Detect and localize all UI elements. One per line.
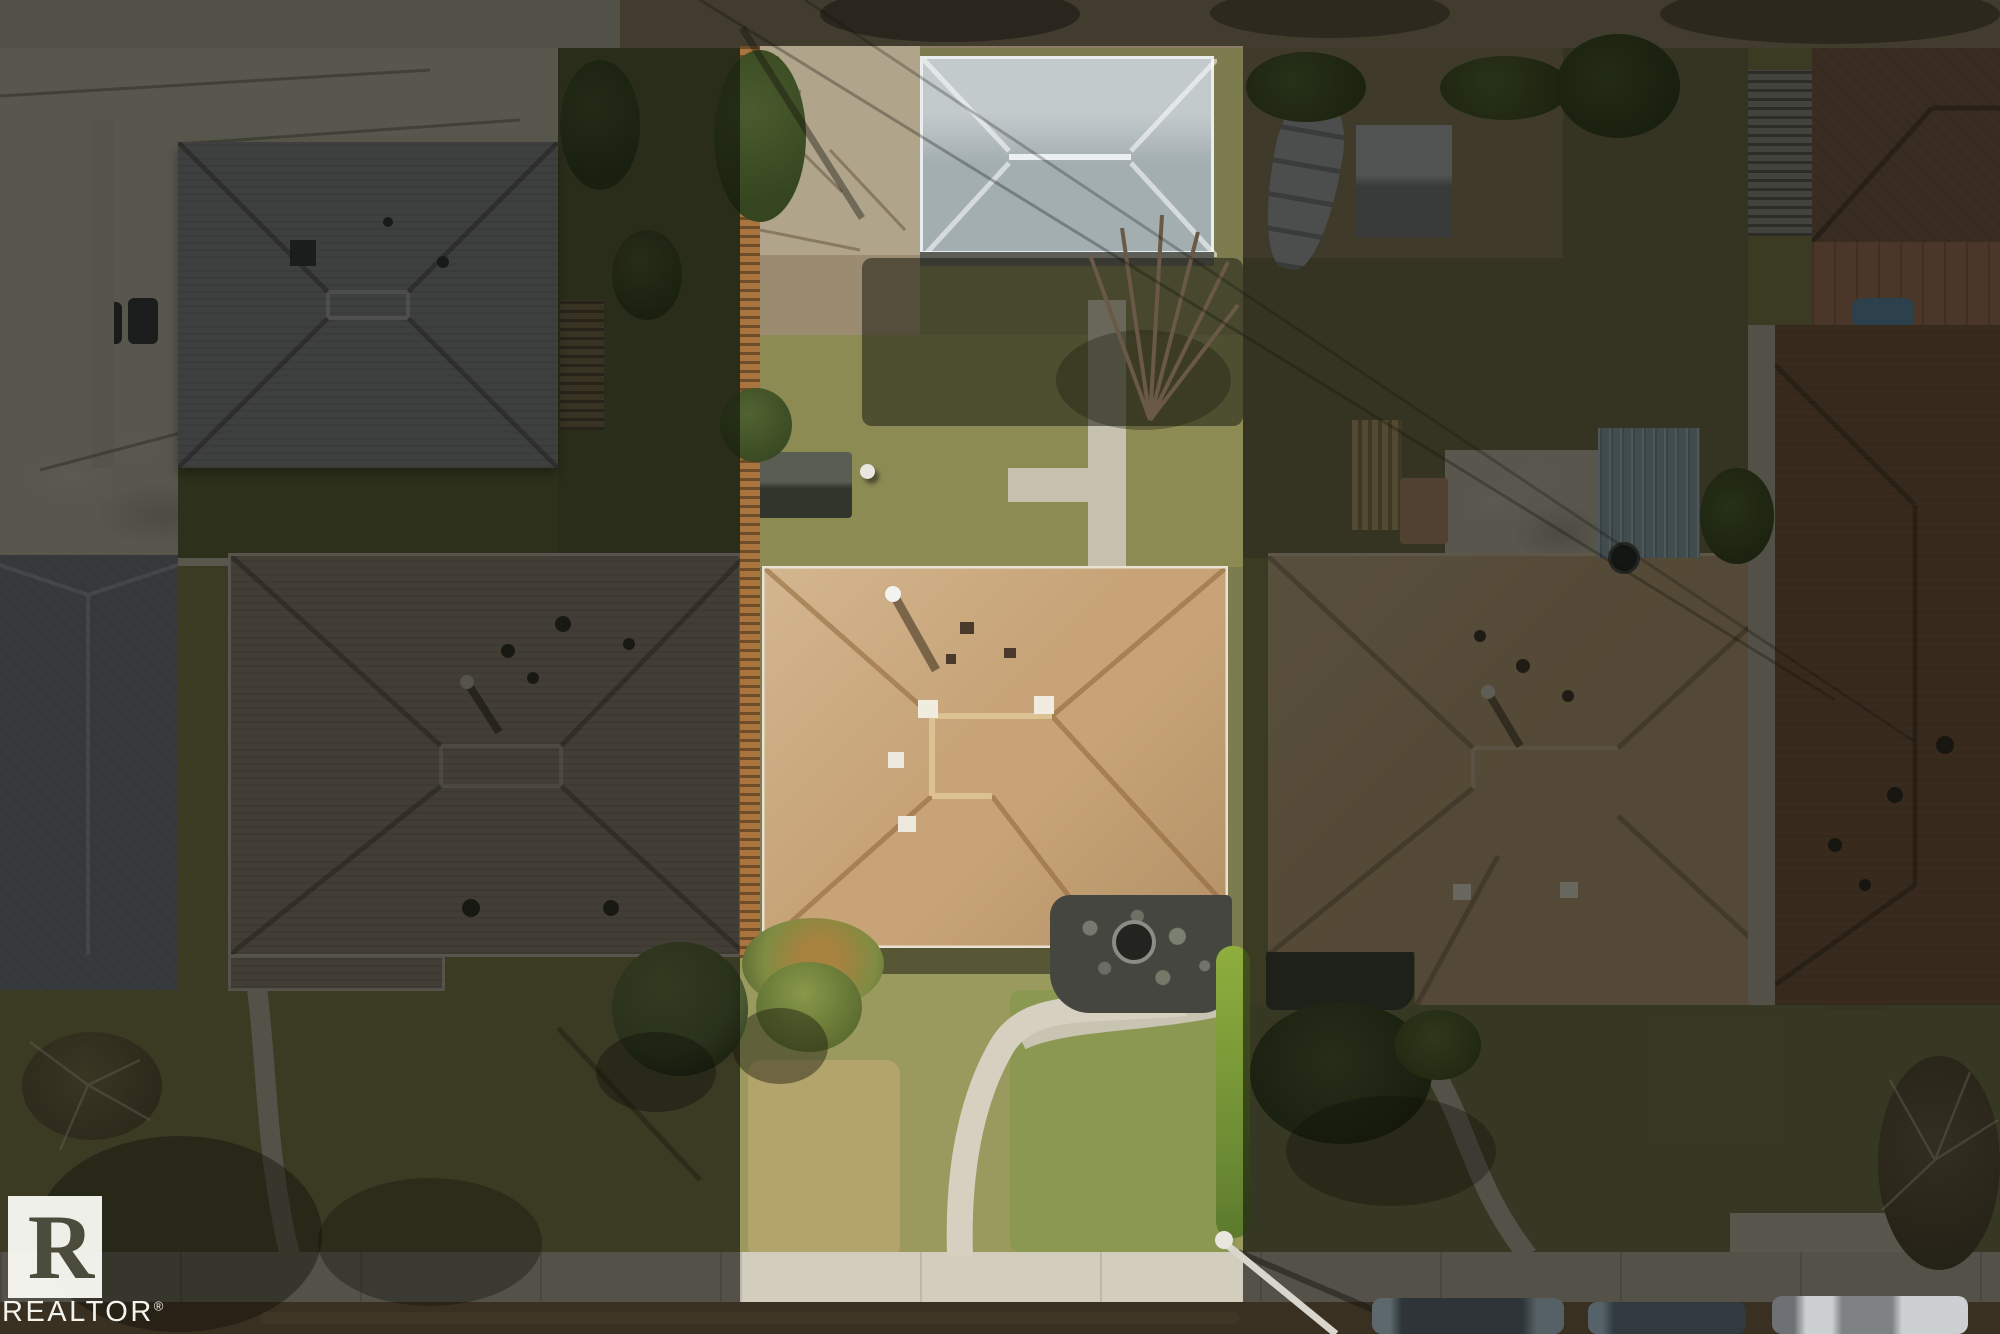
realtor-logo: R — [8, 1196, 102, 1298]
subject-green-grass — [1010, 990, 1236, 1252]
subject-garage-roof — [920, 56, 1214, 254]
roof-vent — [1034, 696, 1054, 714]
sidewalk-bright-segment — [740, 1252, 1243, 1304]
roof-vent — [918, 700, 938, 718]
backyard-shed-roof — [754, 452, 852, 518]
dim-overlay-top — [0, 0, 2000, 46]
roof-pipe — [885, 586, 901, 602]
subject-house-roof — [762, 566, 1228, 948]
roof-vent — [888, 752, 904, 768]
subject-roof-ridges — [762, 566, 1228, 948]
parked-suv — [1588, 1302, 1746, 1334]
roof-vent — [898, 816, 916, 832]
dim-overlay-left — [0, 46, 740, 1302]
parked-van — [1772, 1296, 1968, 1334]
realtor-wordmark: REALTOR® — [2, 1296, 152, 1329]
subject-dead-grass-patch — [748, 1060, 900, 1260]
garage-roof-ridges — [923, 59, 1217, 257]
backyard-tree-shadow — [1056, 330, 1231, 430]
aerial-photo: R REALTOR® — [0, 0, 2000, 1334]
birdbath — [860, 464, 875, 479]
dim-overlay-right — [1243, 46, 2000, 1302]
parked-truck — [1372, 1298, 1564, 1334]
realtor-logo-r: R — [28, 1201, 94, 1293]
firepit — [1112, 920, 1156, 964]
